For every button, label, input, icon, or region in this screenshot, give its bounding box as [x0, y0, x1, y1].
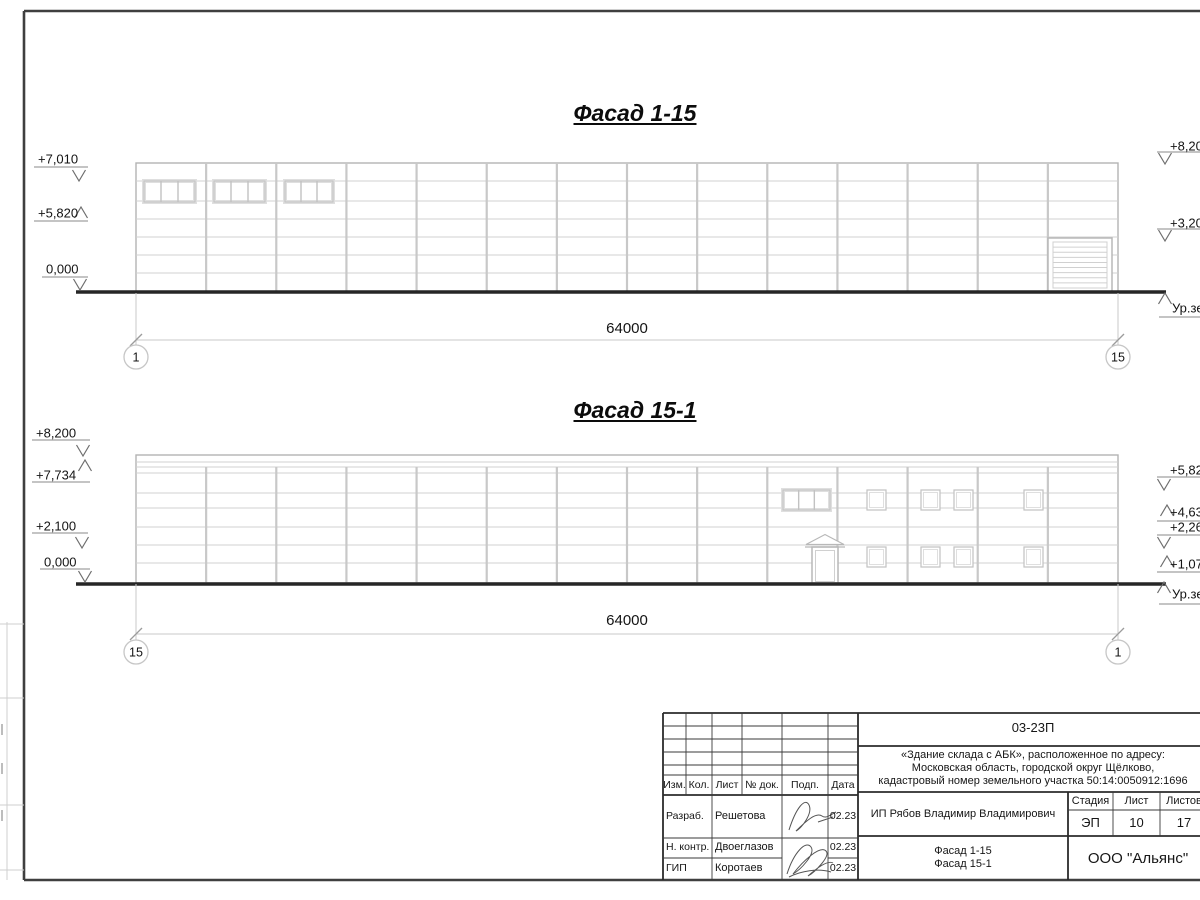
- tb-sheet-title-line2: Фасад 15-1: [858, 858, 1068, 871]
- tb-sheets-value: 17: [1160, 816, 1200, 831]
- svg-text:1: 1: [1115, 646, 1122, 660]
- elevation-marker: +5,820: [1157, 463, 1200, 491]
- tb-description-line: кадастровый номер земельного участка 50:…: [860, 775, 1200, 788]
- tb-stage-label: Стадия: [1068, 795, 1113, 808]
- margin-clipped-text: [1, 724, 3, 735]
- svg-text:+2,100: +2,100: [36, 519, 76, 534]
- svg-text:+4,630: +4,630: [1170, 505, 1200, 520]
- dimension-line: 64000: [130, 293, 1124, 346]
- elevation-marker: +5,820: [34, 206, 88, 222]
- svg-text:+8,200: +8,200: [1170, 139, 1200, 154]
- tb-sheet-value: 10: [1113, 816, 1160, 831]
- elevation-marker: Ур.земли: [1159, 293, 1200, 317]
- window: [214, 181, 265, 202]
- tb-code: 03-23П: [858, 721, 1200, 736]
- elevation-marker: +2,100: [32, 519, 89, 549]
- tb-col-izm: Изм.: [663, 779, 686, 791]
- tb-sheet-title-line1: Фасад 1-15: [858, 845, 1068, 858]
- margin-clipped-text: [1, 810, 3, 821]
- margin-table: [0, 622, 24, 880]
- axis-marker: 1: [1106, 640, 1130, 664]
- tb-description-line: Московская область, городской округ Щёлк…: [860, 762, 1200, 775]
- axis-marker: 1: [124, 345, 148, 369]
- tb-col-podp: Подп.: [782, 779, 828, 791]
- facade-15-1-drawing: 64000151+8,200+7,734+2,1000,000+5,820+4,…: [32, 426, 1200, 665]
- elevation-marker: +8,200: [1157, 139, 1200, 165]
- facade-15-1-title: Фасад 15-1: [460, 397, 810, 423]
- elevation-marker: +2,260: [1157, 520, 1200, 549]
- tb-col-kol: Кол.: [686, 779, 712, 791]
- signature-controllers: [787, 845, 833, 877]
- elevation-marker: +7,010: [34, 152, 88, 182]
- svg-text:+3,200: +3,200: [1170, 216, 1200, 231]
- tb-row-date: 02.23: [828, 862, 858, 874]
- svg-text:+7,734: +7,734: [36, 468, 76, 483]
- tb-col-data: Дата: [828, 779, 858, 791]
- tb-stage-value: ЭП: [1068, 816, 1113, 831]
- window: [867, 547, 886, 567]
- tb-row-role: ГИП: [666, 862, 687, 874]
- tb-org: ООО "Альянс": [1068, 850, 1200, 867]
- tb-row-name: Коротаев: [715, 862, 763, 875]
- svg-text:+1,070: +1,070: [1170, 557, 1200, 572]
- svg-text:0,000: 0,000: [46, 262, 79, 277]
- tb-row-name: Двоеглазов: [715, 841, 773, 854]
- svg-text:Ур.земли: Ур.земли: [1172, 587, 1200, 602]
- svg-text:64000: 64000: [606, 612, 648, 629]
- svg-text:64000: 64000: [606, 320, 648, 337]
- window: [867, 490, 886, 510]
- tb-row-role: Н. контр.: [666, 841, 709, 853]
- tb-sheet-label: Лист: [1113, 795, 1160, 808]
- tb-col-doc: № док.: [742, 779, 782, 791]
- margin-clipped-text: [1, 763, 3, 774]
- tb-description-line: «Здание склада с АБК», расположенное по …: [860, 749, 1200, 762]
- tb-row-role: Разраб.: [666, 810, 704, 822]
- window: [285, 181, 333, 202]
- tb-row-name: Решетова: [715, 810, 765, 823]
- elevation-marker: 0,000: [40, 555, 92, 583]
- facade-1-15-title: Фасад 1-15: [460, 100, 810, 126]
- axis-marker: 15: [124, 640, 148, 664]
- svg-text:+5,820: +5,820: [1170, 463, 1200, 478]
- tb-row-date: 02.23: [828, 841, 858, 853]
- window: [1024, 490, 1043, 510]
- elevation-marker: +8,200: [32, 426, 90, 457]
- roll-up-gate: [1048, 238, 1112, 292]
- svg-text:1: 1: [133, 351, 140, 365]
- facade-1-15-drawing: 64000115+7,010+5,8200,000+8,200+3,200Ур.…: [34, 139, 1200, 370]
- tb-sheets-label: Листов: [1160, 795, 1200, 808]
- window: [783, 490, 830, 510]
- svg-text:+7,010: +7,010: [38, 152, 78, 167]
- elevation-marker: +3,200: [1157, 216, 1200, 242]
- svg-text:+8,200: +8,200: [36, 426, 76, 441]
- window: [921, 490, 940, 510]
- tb-customer: ИП Рябов Владимир Владимирович: [860, 808, 1066, 821]
- svg-text:+2,260: +2,260: [1170, 520, 1200, 535]
- elevation-marker: +7,734: [32, 460, 92, 483]
- axis-marker: 15: [1106, 345, 1130, 369]
- svg-text:15: 15: [129, 646, 143, 660]
- elevation-marker: +1,070: [1157, 556, 1200, 572]
- svg-text:Ур.земли: Ур.земли: [1172, 301, 1200, 316]
- svg-text:0,000: 0,000: [44, 555, 77, 570]
- drawing-sheet: 64000115+7,010+5,8200,000+8,200+3,200Ур.…: [0, 0, 1200, 900]
- svg-text:+5,820: +5,820: [38, 206, 78, 221]
- svg-text:15: 15: [1111, 351, 1125, 365]
- elevation-marker: 0,000: [42, 262, 88, 291]
- dimension-line: 64000: [130, 584, 1124, 640]
- window: [144, 181, 195, 202]
- window: [921, 547, 940, 567]
- window: [1024, 547, 1043, 567]
- tb-row-date: 02.23: [828, 810, 858, 822]
- tb-col-list: Лист: [712, 779, 742, 791]
- window: [954, 490, 973, 510]
- window: [954, 547, 973, 567]
